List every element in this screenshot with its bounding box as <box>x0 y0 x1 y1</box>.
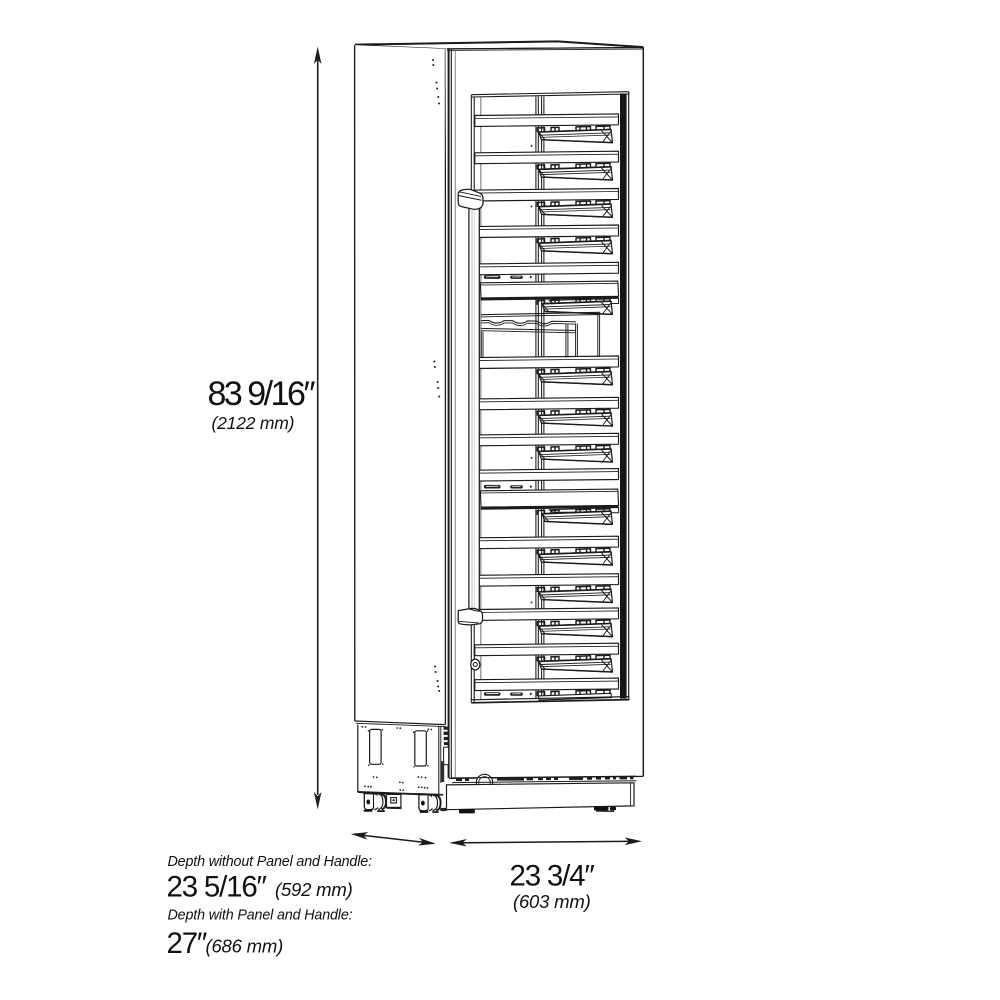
svg-text:Depth with Panel and Handle:: Depth with Panel and Handle: <box>168 908 353 924</box>
svg-text:23 5/16″: 23 5/16″ <box>167 871 267 904</box>
svg-text:Depth without Panel and Handle: Depth without Panel and Handle: <box>168 854 373 870</box>
svg-text:23 3/4″: 23 3/4″ <box>510 859 595 892</box>
svg-text:(603 mm): (603 mm) <box>513 891 591 912</box>
svg-text:(2122 mm): (2122 mm) <box>212 413 295 433</box>
svg-text:(686 mm): (686 mm) <box>206 936 284 957</box>
svg-text:83 9/16″: 83 9/16″ <box>208 375 316 413</box>
svg-text:(592 mm): (592 mm) <box>275 879 353 900</box>
svg-text:27″: 27″ <box>167 927 207 960</box>
